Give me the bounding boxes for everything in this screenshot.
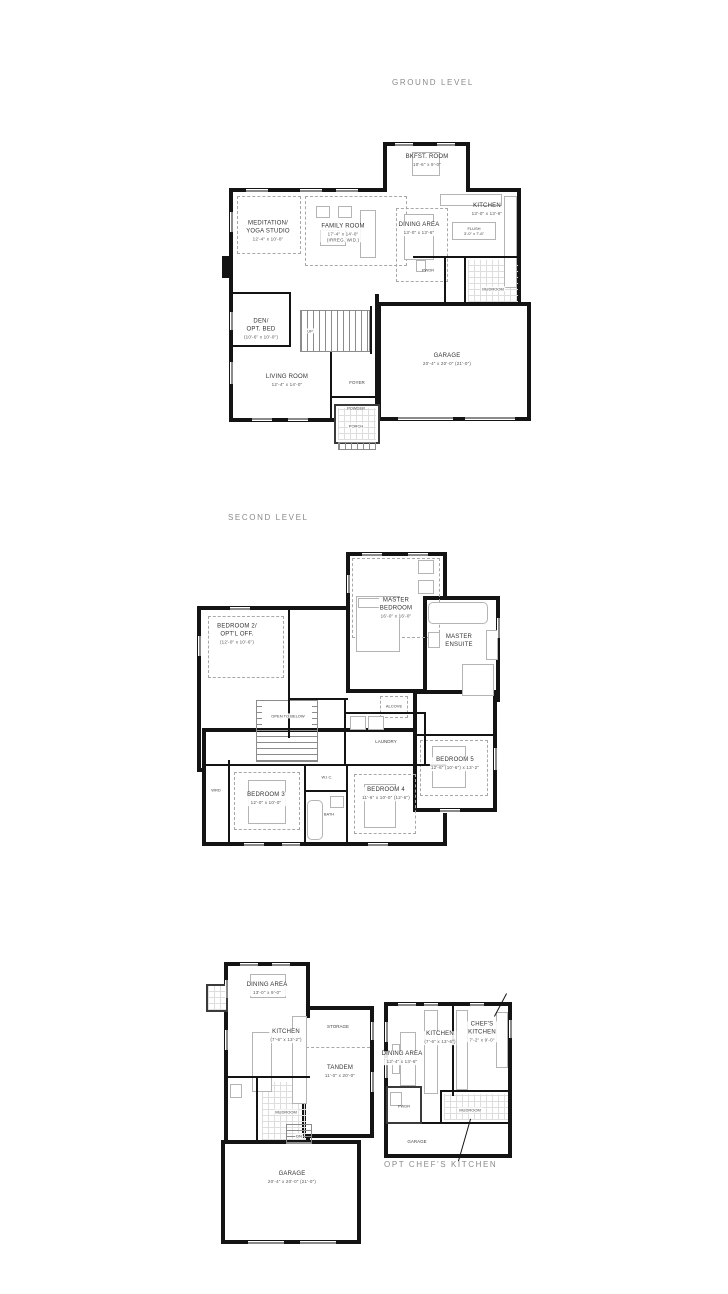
dining-table [404,214,434,260]
ensuite-shower [462,664,494,696]
garage-door [398,416,453,420]
room-label-bed2: BEDROOM 2/ OPT'L OFF. (12'-0" x 10'-6") [217,623,257,644]
window [395,143,413,147]
island-label: FLUSH 3'-0" x 7'-6" [464,226,484,236]
room-label-bed4: BEDROOM 4 11'-6" x 10'-0" (12'-6") [361,787,411,801]
window [225,1030,229,1050]
room-label-breakfast: BKFST. ROOM 10'-6" x 9'-0" [406,154,449,168]
window [347,575,351,593]
wall-mudroom-top [440,1090,510,1092]
dryer [368,716,384,730]
room-label-chefs-kitchen: CHEF'S KITCHEN 7'-2" x 9'-0" [467,1021,497,1042]
bath-vanity [330,796,344,808]
wall-bath [256,1076,258,1142]
window [437,143,455,147]
wall-stair-side [370,306,372,354]
wall-wic-bath [305,790,347,792]
wall-den-top [231,292,291,294]
window [398,1003,416,1007]
window [371,1072,375,1092]
floorplan-sheet: GROUND LEVEL [0,0,728,1294]
room-label-porch: PORCH [348,423,364,428]
room-label-wic: W.I.C. [322,774,333,779]
room-label-dining: DINING AREA 12'-4" x 13'-6" [381,1051,424,1065]
armchair [418,580,434,594]
bath-tub [307,800,323,840]
window [494,748,498,770]
room-label-alcove: ALCOVE [386,703,402,708]
toilet [230,1084,242,1098]
garage-door [465,416,515,420]
room-label-bed5: BEDROOM 5 12'-6" (10'-6") x 13'-2" [430,757,480,771]
window [424,1003,438,1007]
room-label-den: DEN/ OPT. BED (10'-6" x 10'-0") [244,318,278,339]
room-label-mudroom: MUDROOM [481,286,505,291]
chefs-counter [496,1012,508,1068]
wall-corridor [206,764,446,766]
wall-bay-bump [222,256,230,278]
fireplace-hatch [208,986,226,1010]
wall-mudroom-left [464,256,466,302]
storage-tandem-divider [306,1047,370,1048]
window [300,189,322,193]
window [288,417,308,421]
window [272,963,290,967]
wall-wardrobe [228,760,230,844]
wall-pwdr-right [444,256,446,304]
room-label-family: FAMILY ROOM 17'-4" x 14'-0" (IRREG. WID.… [320,223,365,242]
room-label-ensuite: MASTER ENSUITE [445,634,472,650]
armchair [316,206,330,218]
window [509,1020,513,1038]
window [230,362,234,384]
window [246,189,268,193]
room-label-kitchen: KITCHEN (7'-6" x 13'-2") [269,1029,302,1043]
open-to-below-label: OPEN TO BELOW [267,713,309,718]
kitchen-counter [504,196,517,288]
room-label-pwdr: PWDR [398,1103,410,1108]
window [282,843,300,847]
room-label-master: MASTER BEDROOM 16'-0" x 16'-0" [379,597,413,618]
room-label-foyer: FOYER [349,380,365,386]
room-label-mudroom: MUDROOM [274,1109,298,1114]
window [230,312,234,330]
room-label-kitchen: KITCHEN 13'-0" x 13'-6" [472,203,503,217]
wall-mud-band [413,256,519,258]
window [244,843,264,847]
wall-chefs-kitchen [452,1006,454,1096]
room-label-pwdr: PWDR [422,267,434,272]
room-label-dining: DINING AREA 13'-0" x 13'-6" [398,222,441,236]
stair-label-up: UP [306,328,314,333]
window [225,980,229,998]
room-label-storage: STORAGE [327,1024,349,1030]
window [408,553,428,557]
garage-door [248,1241,284,1245]
window [440,809,460,813]
room-label-dining: DINING AREA 13'-0" x 9'-0" [246,982,289,996]
washer [350,716,366,730]
stair-label-dn: DN [295,1133,303,1138]
wall-den-right [289,292,291,347]
toilet [428,632,440,648]
room-label-powder: POWDER [347,405,365,410]
wall-bed4-left [346,766,348,846]
room-label-living: LIVING ROOM 12'-4" x 14'-0" [266,374,308,388]
window [230,607,250,611]
room-label-garage: GARAGE 20'-4" x 20'-0" (21'-0") [268,1171,316,1185]
wall-stair-right [344,698,346,764]
wall-bed5-top [415,734,495,736]
wall-bath-left [304,766,306,844]
room-label-tandem: TANDEM 11'-0" x 20'-0" [325,1065,355,1079]
room-label-laundry: LAUNDRY [375,739,396,745]
window [240,963,258,967]
window [385,1022,389,1042]
wall-foyer-living [330,352,332,420]
ensuite-tub [428,602,488,624]
armchair [338,206,352,218]
wall-mudroom-left [440,1090,442,1124]
window [336,189,358,193]
room-label-garage: GARAGE [407,1139,426,1145]
window [252,417,272,421]
room-label-wrd: WRD [211,787,221,792]
room-label-garage: GARAGE 20'-4" x 20'-0" (21'-0") [423,353,471,367]
window [470,1003,484,1007]
room-label-mudroom: MUDROOM [458,1107,482,1112]
window [497,618,501,638]
chefs-option-title: OPT CHEF'S KITCHEN [384,1160,497,1169]
room-label-bath: BATH [324,811,334,816]
window [198,636,202,656]
kitchen-counter [424,1010,438,1094]
wall-stair-top [288,698,348,700]
wall-outline-garage-strip [384,1124,512,1158]
porch-steps [338,442,376,450]
wall-den-bottom [231,345,291,347]
window [371,1022,375,1040]
room-label-bed3: BEDROOM 3 12'-0" x 10'-0" [246,792,286,806]
room-label-meditation: MEDITATION/ YOGA STUDIO 12'-4" x 10'-0" [246,220,290,241]
wall-laundry-top [346,712,426,714]
window [368,843,388,847]
window [362,553,382,557]
window [230,212,234,232]
wall-powder-top [332,396,378,398]
garage-door [300,1241,336,1245]
wall-laundry-right [424,712,426,766]
armchair [418,560,434,574]
room-label-kitchen: KITCHEN (7'-6" x 13'-6") [423,1031,456,1045]
wall-mud-band [226,1076,310,1078]
